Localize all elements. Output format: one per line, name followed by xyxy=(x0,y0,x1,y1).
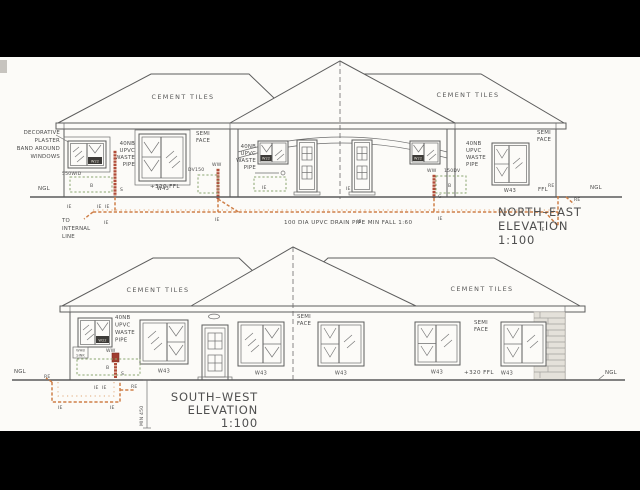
note-line: WASTE xyxy=(466,155,486,161)
dv-label: 150DV xyxy=(444,168,461,174)
window-label: W22 xyxy=(98,338,106,342)
scan-smudge xyxy=(0,60,7,73)
bath-label: B xyxy=(106,365,109,371)
window-label: W43 xyxy=(504,188,516,194)
to-internal-line-note: TO INTERNAL LINE xyxy=(61,218,90,240)
ie-label: IE xyxy=(262,185,267,191)
window-label: W43 xyxy=(158,369,170,375)
north-east-elevation: CEMENT TILES CEMENT TILES xyxy=(17,61,622,247)
note-line: PIPE xyxy=(244,165,257,171)
note-line: PIPE xyxy=(123,162,136,168)
drain-note: 100 DIA UPVC DRAIN PIPE MIN FALL 1:60 xyxy=(284,220,412,226)
note-line: DECORATIVE xyxy=(24,130,61,136)
entrance-door xyxy=(294,140,320,195)
note-line: WASTE xyxy=(115,330,135,336)
ie-label: IE xyxy=(104,220,109,226)
window-w22: W22 xyxy=(258,141,288,164)
entrance-door xyxy=(349,140,375,195)
window-label: W22 xyxy=(91,159,99,163)
note-line: 40NB xyxy=(115,315,130,321)
note-line: 40NB xyxy=(466,141,481,147)
ngl-label: NGL xyxy=(14,369,26,375)
note-line: PIPE xyxy=(466,162,479,168)
note-line: UPVC xyxy=(241,151,256,157)
window-w22: W22 xyxy=(410,141,440,164)
ie-label: IE xyxy=(97,204,102,210)
dimension-text: MIN 450 xyxy=(139,406,145,426)
ngl-label: NGL xyxy=(605,370,617,376)
note-line: PLASTER xyxy=(35,138,60,144)
ne-title: NORTH–EAST ELEVATION 1:100 xyxy=(498,205,582,247)
fascia xyxy=(56,123,566,129)
ie-label: IE xyxy=(58,405,63,411)
window-label: W43 xyxy=(431,370,443,376)
note-line: FACE xyxy=(474,327,489,333)
ie-label: IE xyxy=(346,186,351,192)
note-line: LINE xyxy=(62,234,75,240)
note-line: 40NB xyxy=(241,144,256,150)
south-west-elevation: CEMENT TILES CEMENT TILES xyxy=(12,247,625,430)
s-label: S xyxy=(120,187,123,193)
note-line: WASTE xyxy=(236,158,256,164)
ie-label: IE xyxy=(215,217,220,223)
note-line: SEMI xyxy=(196,131,210,137)
ie-label: IE xyxy=(438,216,443,222)
re-label: RE xyxy=(131,384,138,390)
note-line: UPVC xyxy=(466,148,481,154)
ngl-label: NGL xyxy=(590,185,602,191)
ie-label: IE xyxy=(110,405,115,411)
title-line: NORTH–EAST xyxy=(498,205,582,219)
min-450-dimension: MIN 450 xyxy=(139,380,151,428)
ww-label: WW xyxy=(212,162,222,168)
re-label: RE xyxy=(548,183,555,189)
ie-label: IE xyxy=(67,204,72,210)
note-line: TO xyxy=(61,218,70,224)
ie-label: IE xyxy=(94,385,99,391)
drain-pipe xyxy=(46,378,134,402)
ffl-label: FFL xyxy=(538,187,548,193)
ie-label: IE xyxy=(102,385,107,391)
window-label: W22 xyxy=(262,157,270,161)
note-line: INTERNAL xyxy=(62,226,90,232)
window-label: W43 xyxy=(255,371,267,377)
ngl-label: NGL xyxy=(38,186,50,192)
semi-face-label: SEMI FACE xyxy=(474,320,489,333)
vent-cap xyxy=(112,353,119,362)
cement-tiles-label: CEMENT TILES xyxy=(436,91,499,99)
s-label: S xyxy=(121,371,124,377)
note-line: WASTE xyxy=(115,155,135,161)
fascia xyxy=(60,306,585,312)
window-w22: W22 xyxy=(78,318,112,347)
title-line: ELEVATION xyxy=(498,219,568,233)
title-line: ELEVATION xyxy=(188,403,258,417)
note-line: FACE xyxy=(537,137,552,143)
dv-label: DV150 xyxy=(188,167,204,173)
fixture-line: SINK xyxy=(76,353,85,357)
title-line: SOUTH–WEST xyxy=(171,390,258,404)
note-line: UPVC xyxy=(120,148,135,154)
note-line: 40NB xyxy=(120,141,135,147)
window-label: W22 xyxy=(414,157,422,161)
note-line: FACE xyxy=(297,321,312,327)
scanned-drawing-photo: CEMENT TILES CEMENT TILES xyxy=(0,0,640,490)
ie-label: IE xyxy=(105,204,110,210)
sw-title: SOUTH–WEST ELEVATION 1:100 xyxy=(171,390,258,430)
ffl-320-label: +320 FFL xyxy=(150,184,180,190)
ww-label: WW xyxy=(427,168,437,174)
semi-face-label: SEMI FACE xyxy=(297,314,312,327)
note-line: BAND AROUND xyxy=(17,146,60,152)
note-line: SEMI xyxy=(474,320,488,326)
window-w22: W22 xyxy=(64,137,110,172)
note-line: WINDOWS xyxy=(31,154,61,160)
title-line: 1:100 xyxy=(498,233,535,247)
ffl-320-label: +320 FFL xyxy=(464,370,494,376)
elevation-drawing: CEMENT TILES CEMENT TILES xyxy=(0,0,640,490)
fixture-line: WHB xyxy=(76,349,85,353)
title-line: 1:100 xyxy=(221,416,258,430)
semi-face-label: SEMI FACE xyxy=(196,131,211,144)
note-line: SEMI xyxy=(297,314,311,320)
bath-label: B xyxy=(90,183,93,189)
re-label: RE xyxy=(44,374,51,380)
note-line: SEMI xyxy=(537,130,551,136)
window-label: W43 xyxy=(335,371,347,377)
note-line: FACE xyxy=(196,138,211,144)
cement-tiles-label: CEMENT TILES xyxy=(126,286,189,294)
wid-label: 550WID xyxy=(62,171,82,177)
semi-face-label: SEMI FACE xyxy=(537,130,552,143)
cement-tiles-label: CEMENT TILES xyxy=(151,93,214,101)
cement-tiles-label: CEMENT TILES xyxy=(450,285,513,293)
bath-label: B xyxy=(448,183,451,189)
window-label: W43 xyxy=(501,371,513,377)
re-label: RE xyxy=(574,197,581,203)
note-line: UPVC xyxy=(115,323,130,329)
note-line: PIPE xyxy=(115,338,128,344)
